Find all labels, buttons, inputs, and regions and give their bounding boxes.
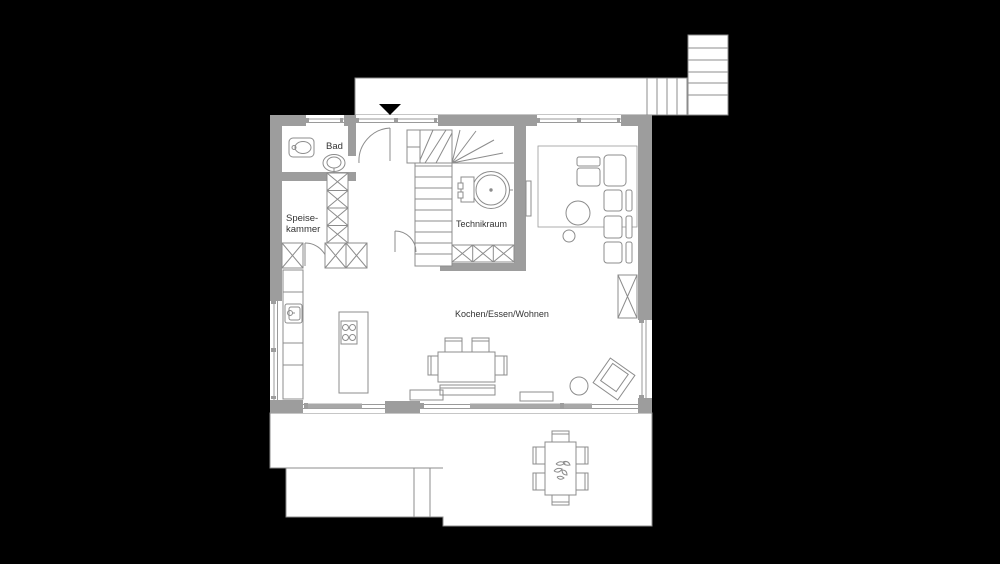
wall-bad-stub (348, 126, 356, 156)
wall-technik-south (440, 263, 526, 271)
kitchen-counter (283, 270, 303, 399)
room-label-wohnbereich: Kochen/Essen/Wohnen (455, 309, 549, 319)
window-kitchen-left (270, 301, 282, 400)
sliding-door-right (420, 401, 638, 413)
terrace (270, 413, 652, 526)
room-label-speisekammer-line2: kammer (286, 224, 320, 235)
room-label-speisekammer-line1: Speise- (286, 213, 318, 224)
sliding-door-left (303, 401, 385, 413)
floor-plan-drawing: Bad Speise- kammer Technikraum Kochen/Es… (0, 0, 1000, 564)
room-label-bad: Bad (326, 141, 343, 152)
dining-table (438, 352, 495, 382)
kitchen-island (339, 312, 368, 393)
wall-cabinet (618, 275, 637, 318)
window-living-top (537, 115, 621, 126)
floor-plan-canvas: Bad Speise- kammer Technikraum Kochen/Es… (0, 0, 1000, 564)
room-label-technikraum: Technikraum (456, 219, 507, 229)
dining-bench (440, 385, 495, 395)
window-living-right (638, 320, 652, 398)
technikraum-shelves (452, 245, 514, 262)
exterior-stairs-vertical (688, 35, 728, 115)
window-bad (306, 115, 344, 126)
washbasin (289, 138, 314, 157)
entrance-door-glazing (356, 115, 438, 126)
kitchen-sink (285, 304, 302, 323)
wall-technik-east (514, 126, 526, 263)
